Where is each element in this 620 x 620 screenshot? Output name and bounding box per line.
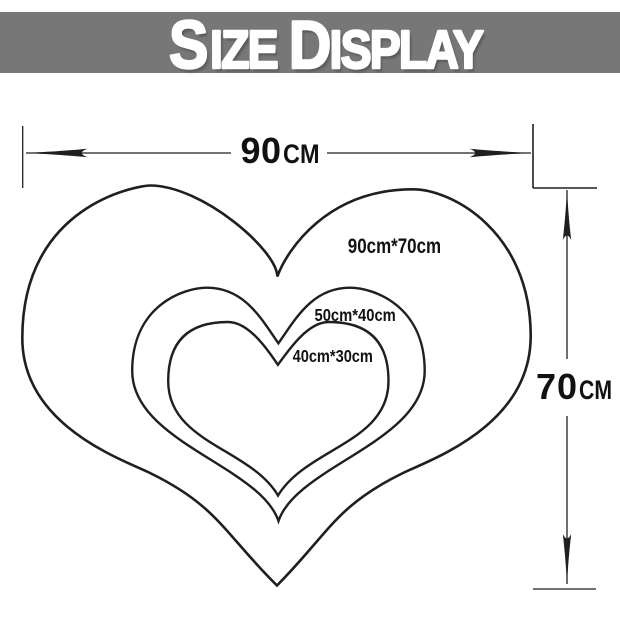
svg-text:CM: CM bbox=[283, 139, 320, 169]
svg-text:70: 70 bbox=[536, 366, 577, 407]
svg-text:90: 90 bbox=[241, 130, 282, 171]
svg-text:CM: CM bbox=[579, 375, 612, 405]
svg-text:90cm*70cm: 90cm*70cm bbox=[348, 233, 441, 258]
svg-text:50cm*40cm: 50cm*40cm bbox=[315, 305, 396, 325]
svg-text:40cm*30cm: 40cm*30cm bbox=[293, 346, 373, 366]
